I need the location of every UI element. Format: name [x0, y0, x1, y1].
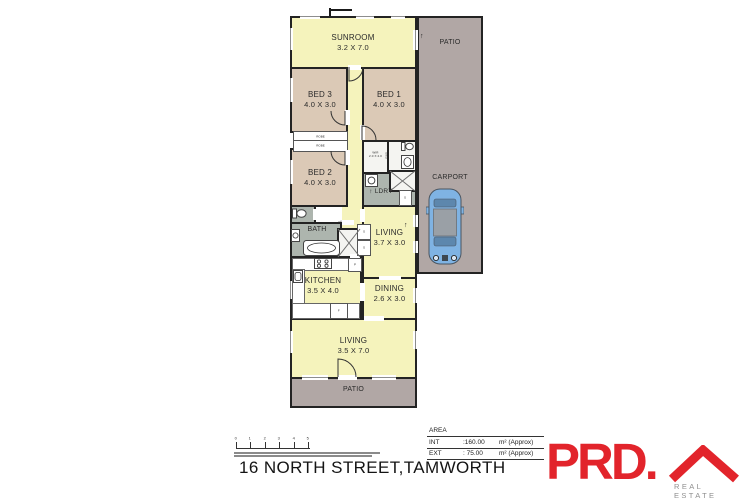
entry-arrow: ↑: [420, 33, 424, 40]
robe-strip: ROBE: [293, 140, 348, 152]
door-opening: [360, 209, 365, 222]
window-marker: [413, 30, 418, 50]
robe-label: ROBE: [316, 144, 325, 147]
area-value: : 75.00: [463, 450, 499, 457]
car-icon: [426, 187, 464, 267]
pantry-marker: P: [348, 258, 362, 272]
floorplan-page: ROBE ROBE P F: [0, 0, 750, 501]
area-row-int: INT :160.00 m² (Approx): [427, 437, 544, 449]
pantry-label: P: [354, 263, 356, 266]
address-title: 16 NORTH STREET,TAMWORTH: [239, 458, 506, 478]
label-laundry: ↑ LDRY: [363, 188, 399, 196]
window-marker: [413, 331, 418, 349]
label-bed2: BED 2 4.0 X 3.0: [296, 168, 344, 187]
area-table: AREA INT :160.00 m² (Approx) EXT : 75.00…: [427, 426, 544, 460]
window-marker: [288, 78, 293, 102]
door-opening: [313, 209, 317, 220]
toilet-icon: [292, 208, 307, 219]
window-marker: [391, 14, 405, 19]
entry-arrow: ↑: [404, 222, 408, 229]
door-opening: [338, 375, 357, 380]
label-patio-top: PATIO: [429, 39, 471, 48]
label-bed3: BED 3 4.0 X 3.0: [296, 90, 344, 109]
entry-arrow: ↑: [369, 188, 372, 195]
label-bath: BATH: [298, 226, 336, 235]
label-sunroom: SUNROOM 3.2 X 7.0: [293, 33, 413, 52]
label-carport: CARPORT: [421, 174, 479, 183]
washing-machine-icon: [365, 174, 378, 187]
scale-tick-label: 3: [278, 437, 280, 441]
window-marker: [372, 375, 396, 380]
window-marker: [288, 331, 293, 353]
window-marker: [413, 215, 418, 227]
kitchen-counter: [292, 303, 360, 319]
ensuite-sink-icon: [401, 155, 414, 169]
scale-tick-label: 5: [307, 437, 309, 441]
scale-bar: 0 1 2 3 4 5: [234, 432, 312, 449]
window-marker: [300, 14, 320, 19]
label-bed1: BED 1 4.0 X 3.0: [364, 90, 414, 109]
door-opening: [364, 316, 384, 321]
door-swing-arrow: →: [337, 218, 343, 224]
prd-wordmark: PRD.: [546, 432, 656, 491]
label-patio-bottom: PATIO: [295, 386, 412, 395]
bathtub-icon: [303, 240, 340, 256]
area-unit: m² (Approx): [499, 450, 544, 457]
ensuite-toilet-icon: [401, 142, 414, 151]
window-marker: [356, 14, 374, 19]
scale-tick-label: 1: [249, 437, 251, 441]
prd-logo: PRD. REAL ESTATE: [546, 438, 746, 498]
storage-label: S: [404, 196, 406, 199]
roof-icon: [668, 445, 740, 483]
door-opening: [348, 65, 361, 70]
robe-label: ROBE: [316, 135, 325, 138]
label-ensuite: ENS: [385, 152, 388, 158]
area-label: INT: [429, 439, 463, 446]
disclaimer-text: [234, 452, 380, 454]
scale-tick-label: 0: [235, 437, 237, 441]
stove-burners-icon: [314, 258, 332, 269]
door-opening: [345, 110, 350, 125]
fridge-marker: F: [330, 303, 348, 319]
window-marker: [302, 375, 328, 380]
door-opening: [345, 150, 350, 165]
scale-tick-label: 4: [293, 437, 295, 441]
door-opening: [360, 125, 365, 140]
door-opening: [342, 220, 354, 225]
prd-tagline: REAL ESTATE: [674, 482, 746, 500]
label-living-small: LIVING 3.7 X 3.0: [364, 228, 415, 247]
area-label: EXT: [429, 450, 463, 457]
door-opening: [379, 276, 401, 280]
area-value: :160.00: [463, 439, 499, 446]
scale-baseline: [236, 448, 310, 449]
label-dining: DINING 2.6 X 3.0: [364, 284, 415, 303]
disclaimer-text: [234, 455, 372, 457]
fridge-label: F: [338, 309, 340, 312]
label-kitchen: KITCHEN 3.5 X 4.0: [296, 276, 350, 295]
window-marker: [288, 160, 293, 184]
scale-tick-label: 2: [264, 437, 266, 441]
area-unit: m² (Approx): [499, 439, 544, 446]
label-living-large: LIVING 3.5 X 7.0: [295, 336, 412, 355]
storage-cupboard: S: [399, 190, 412, 206]
area-table-title: AREA: [427, 426, 544, 437]
